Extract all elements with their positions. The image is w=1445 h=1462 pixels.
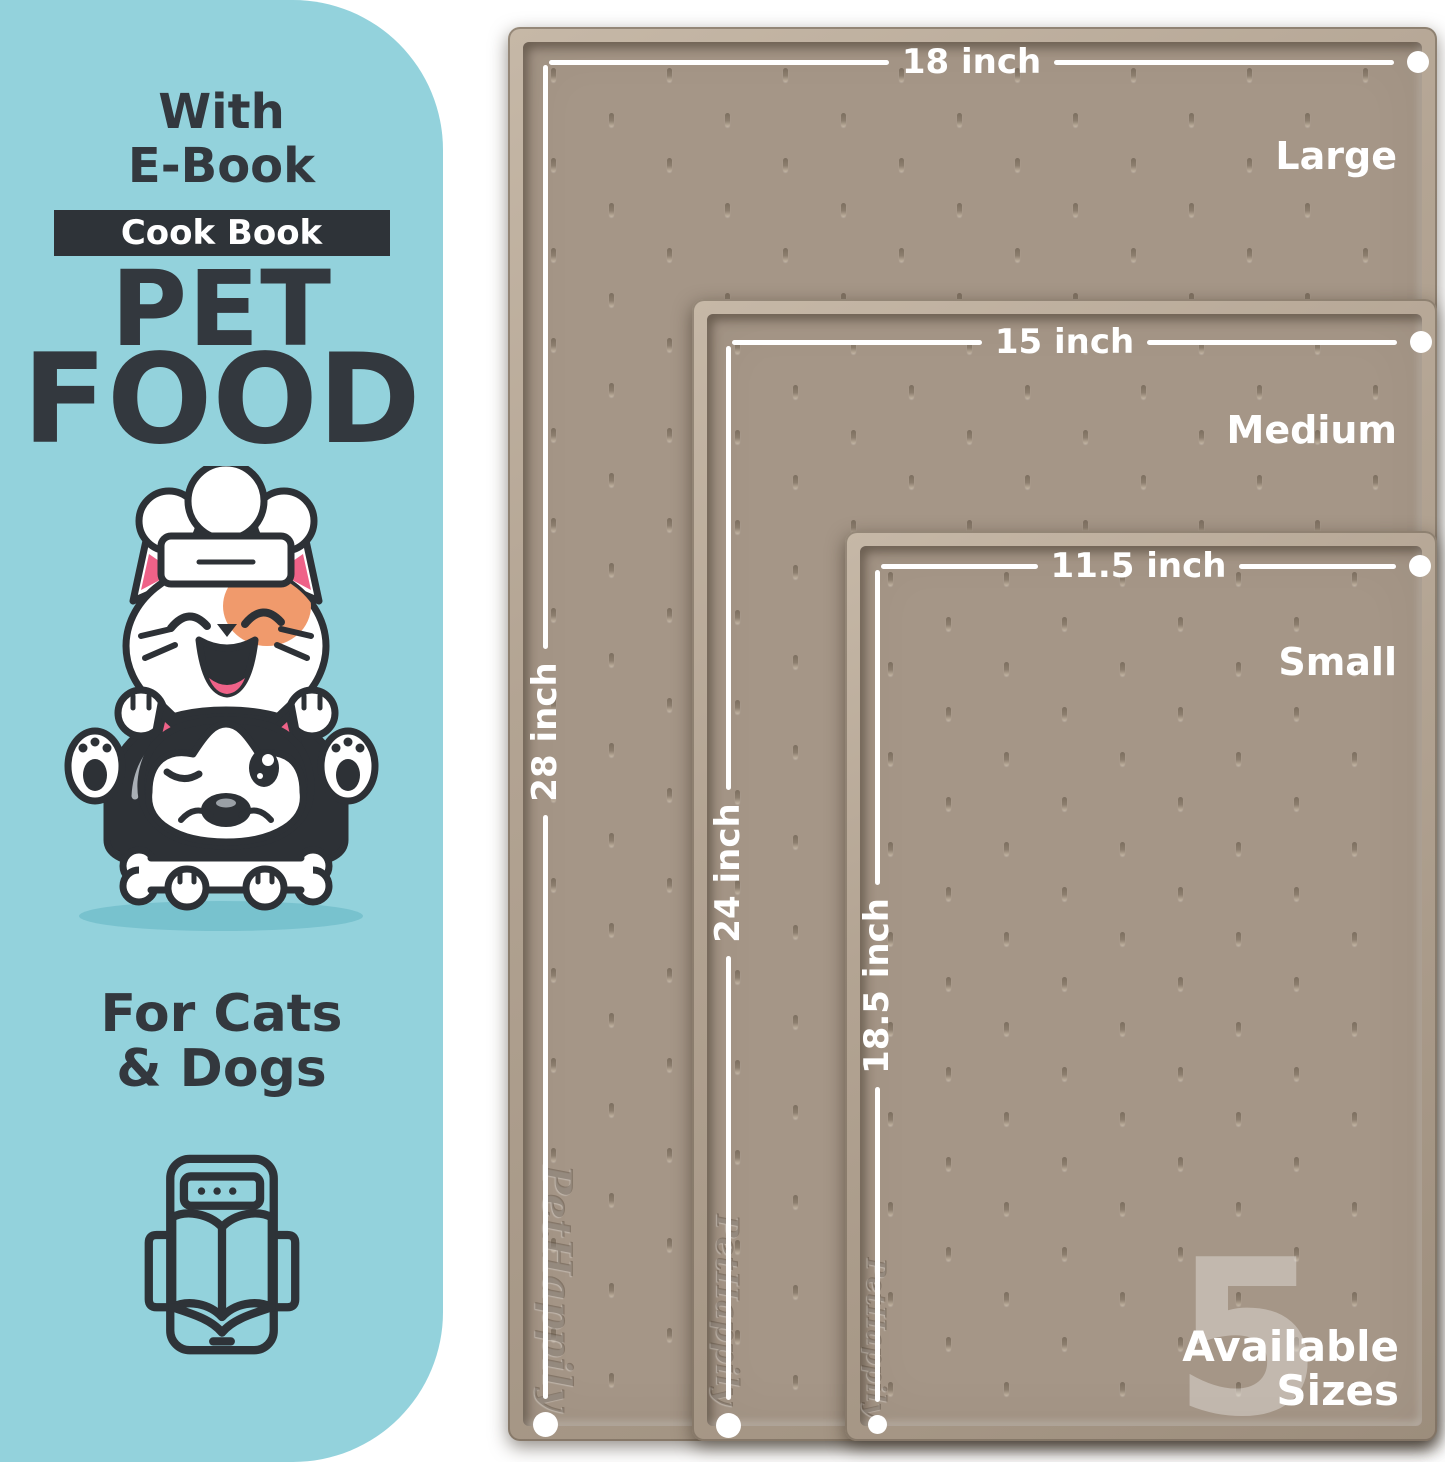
width-label-large: 18 inch	[902, 45, 1041, 79]
left-info-panel: With E-Book Cook Book PET FOOD	[0, 0, 443, 1462]
dimension-line-segment	[549, 60, 889, 65]
mat-texture-dash	[1120, 842, 1125, 856]
mat-texture-dash	[793, 1195, 798, 1209]
mat-texture-dash	[1062, 977, 1067, 991]
mat-texture-dash	[1373, 475, 1378, 489]
mat-texture-dash	[1062, 1157, 1067, 1171]
mat-texture-dash	[1004, 662, 1009, 676]
dimension-line-segment	[543, 815, 548, 1399]
mat-texture-dash	[899, 248, 904, 262]
mat-texture-dash	[667, 518, 672, 532]
mat-texture-dash	[1025, 475, 1030, 489]
product-image: With E-Book Cook Book PET FOOD	[0, 0, 1445, 1462]
mat-texture-dash	[1083, 430, 1088, 444]
chef-hat	[139, 466, 314, 584]
width-dimension-medium: 15 inch	[732, 324, 1432, 360]
mat-texture-dash	[946, 1247, 951, 1261]
mat-texture-dash	[1236, 932, 1241, 946]
mat-texture-dash	[1141, 475, 1146, 489]
mat-texture-dash	[946, 707, 951, 721]
mat-texture-dash	[1015, 158, 1020, 172]
mat-texture-dash	[667, 968, 672, 982]
mat-texture-dash	[1004, 932, 1009, 946]
mat-texture-dash	[1178, 1157, 1183, 1171]
mat-texture-dash	[1352, 842, 1357, 856]
mat-texture-dash	[1352, 1202, 1357, 1216]
dimension-line-segment	[726, 346, 731, 790]
mat-texture-dash	[1199, 430, 1204, 444]
audience-text: For Cats & Dogs	[101, 987, 343, 1097]
height-label-medium: 24 inch	[711, 803, 745, 942]
mat-texture-dash	[1120, 1202, 1125, 1216]
cat-dog-chef-illustration	[49, 466, 394, 941]
mat-texture-dash	[793, 655, 798, 669]
mat-texture-dash	[793, 835, 798, 849]
mat-texture-dash	[1257, 385, 1262, 399]
product-title-line2: FOOD	[22, 351, 420, 450]
mat-texture-dash	[1062, 1067, 1067, 1081]
ebook-heading: With E-Book	[128, 86, 315, 194]
mat-texture-dash	[783, 158, 788, 172]
mat-texture-dash	[793, 1015, 798, 1029]
mat-texture-dash	[946, 617, 951, 631]
sizes-text-line2: Sizes	[1182, 1369, 1399, 1413]
height-dimension-large: 28 inch	[527, 65, 563, 1437]
audience-line2: & Dogs	[101, 1042, 343, 1097]
mat-texture-dash	[1247, 248, 1252, 262]
mat-texture-dash	[1120, 752, 1125, 766]
mat-texture-dash	[1352, 1022, 1357, 1036]
audience-line1: For Cats	[101, 987, 343, 1042]
mat-texture-dash	[793, 385, 798, 399]
dog-nose	[201, 793, 251, 827]
mat-texture-dash	[667, 248, 672, 262]
mat-texture-dash	[667, 1058, 672, 1072]
mat-texture-dash	[957, 113, 962, 127]
dimension-line-segment	[726, 956, 731, 1400]
mat-texture-dash	[1294, 1067, 1299, 1081]
mat-texture-dash	[725, 203, 730, 217]
mat-texture-dash	[667, 158, 672, 172]
mat-texture-dash	[1294, 797, 1299, 811]
mat-texture-dash	[667, 608, 672, 622]
mat-texture-dash	[946, 1337, 951, 1351]
dimension-line-segment	[875, 1087, 880, 1402]
mat-texture-dash	[1178, 707, 1183, 721]
dimension-line-segment	[875, 570, 880, 885]
mat-texture-dash	[667, 1148, 672, 1162]
mat-texture-dash	[1189, 113, 1194, 127]
mat-texture-dash	[1178, 797, 1183, 811]
mat-texture-dash	[609, 1373, 614, 1387]
available-sizes-badge: 5 Available Sizes	[1135, 1245, 1405, 1425]
mat-texture-dash	[841, 113, 846, 127]
mat-texture-dash	[609, 1013, 614, 1027]
mat-texture-dash	[793, 475, 798, 489]
size-label-small: Small	[1278, 640, 1397, 684]
mat-texture-dash	[1236, 662, 1241, 676]
mat-texture-dash	[1131, 248, 1136, 262]
mat-texture-dash	[1062, 887, 1067, 901]
mat-texture-dash	[1120, 1292, 1125, 1306]
sizes-text: Available Sizes	[1182, 1325, 1399, 1412]
ebook-heading-line2: E-Book	[128, 140, 315, 194]
mat-texture-dash	[609, 833, 614, 847]
mat-texture-dash	[609, 563, 614, 577]
mat-texture-dash	[946, 1067, 951, 1081]
mat-texture-dash	[609, 743, 614, 757]
mat-texture-dash	[1305, 113, 1310, 127]
mat-texture-dash	[1294, 617, 1299, 631]
mat-texture-dash	[1294, 707, 1299, 721]
dog-open-eye	[249, 749, 279, 787]
mat-texture-dash	[1236, 1022, 1241, 1036]
dimension-line-segment	[1147, 340, 1397, 345]
mat-texture-dash	[793, 1375, 798, 1389]
mat-texture-dash	[609, 923, 614, 937]
mat-texture-dash	[1062, 1247, 1067, 1261]
mat-texture-dash	[946, 977, 951, 991]
dimension-endpoint-dot	[716, 1413, 741, 1438]
mat-texture-dash	[1004, 1112, 1009, 1126]
mat-texture-dash	[1004, 1022, 1009, 1036]
mat-texture-dash	[1120, 1382, 1125, 1396]
mat-texture-dash	[609, 383, 614, 397]
mat-texture-dash	[1062, 1337, 1067, 1351]
mat-texture-dash	[1141, 385, 1146, 399]
dimension-endpoint-dot	[868, 1415, 887, 1434]
mat-texture-dash	[667, 878, 672, 892]
mat-texture-dash	[1352, 932, 1357, 946]
mat-texture-dash	[1062, 617, 1067, 631]
ebook-tablet-icon	[137, 1153, 307, 1358]
product-title: PET FOOD	[22, 268, 420, 450]
mat-texture-dash	[1004, 1292, 1009, 1306]
mat-texture-dash	[609, 1193, 614, 1207]
mat-texture-dash	[1025, 385, 1030, 399]
mat-texture-dash	[609, 473, 614, 487]
mat-texture-dash	[946, 887, 951, 901]
mat-texture-dash	[1178, 887, 1183, 901]
mat-texture-dash	[793, 565, 798, 579]
ebook-heading-line1: With	[128, 86, 315, 140]
mat-texture-dash	[1373, 385, 1378, 399]
height-label-small: 18.5 inch	[860, 898, 894, 1074]
size-label-large: Large	[1275, 134, 1397, 178]
dimension-line-segment	[732, 340, 982, 345]
dimension-endpoint-dot	[1409, 555, 1431, 577]
mat-texture-dash	[1236, 842, 1241, 856]
mat-texture-dash	[609, 653, 614, 667]
mat-texture-dash	[1073, 203, 1078, 217]
height-dimension-medium: 24 inch	[710, 346, 746, 1438]
mat-texture-dash	[1073, 113, 1078, 127]
mat-texture-dash	[899, 158, 904, 172]
mat-texture-dash	[667, 1238, 672, 1252]
mat-texture-dash	[1004, 752, 1009, 766]
dimension-endpoint-dot	[1410, 331, 1432, 353]
mat-texture-dash	[609, 1283, 614, 1297]
mat-texture-dash	[667, 1328, 672, 1342]
mat-texture-dash	[609, 293, 614, 307]
ground-shadow	[79, 901, 363, 931]
dimension-line-segment	[1054, 60, 1394, 65]
mat-texture-dash	[1352, 752, 1357, 766]
mat-texture-dash	[1178, 977, 1183, 991]
width-dimension-small: 11.5 inch	[881, 548, 1431, 584]
mat-texture-dash	[1189, 203, 1194, 217]
mat-texture-dash	[1236, 752, 1241, 766]
dimension-line-segment	[1239, 564, 1396, 569]
mat-texture-dash	[946, 797, 951, 811]
mat-texture-dash	[793, 1105, 798, 1119]
mat-texture-dash	[1294, 887, 1299, 901]
height-label-large: 28 inch	[528, 662, 562, 801]
mat-texture-dash	[909, 385, 914, 399]
width-label-medium: 15 inch	[995, 325, 1134, 359]
dimension-line-segment	[543, 65, 548, 649]
mat-texture-dash	[667, 338, 672, 352]
width-label-small: 11.5 inch	[1051, 549, 1227, 583]
sizes-text-line1: Available	[1182, 1325, 1399, 1369]
mat-texture-dash	[725, 113, 730, 127]
mat-texture-dash	[967, 430, 972, 444]
mat-texture-dash	[609, 113, 614, 127]
mat-texture-dash	[1004, 1382, 1009, 1396]
mat-texture-dash	[609, 1103, 614, 1117]
mat-texture-dash	[1257, 475, 1262, 489]
mat-texture-dash	[1062, 797, 1067, 811]
mat-texture-dash	[667, 788, 672, 802]
mat-texture-dash	[783, 248, 788, 262]
mat-texture-dash	[1294, 1157, 1299, 1171]
mat-texture-dash	[793, 1285, 798, 1299]
mat-texture-dash	[957, 203, 962, 217]
mat-texture-dash	[1305, 203, 1310, 217]
mat-texture-dash	[1131, 158, 1136, 172]
mat-texture-dash	[667, 428, 672, 442]
tablet-toolbar	[183, 1177, 259, 1206]
mat-texture-dash	[793, 925, 798, 939]
mat-texture-dash	[1120, 1112, 1125, 1126]
dimension-endpoint-dot	[533, 1412, 558, 1437]
mat-texture-dash	[1004, 842, 1009, 856]
mat-texture-dash	[1294, 977, 1299, 991]
mat-texture-dash	[946, 1157, 951, 1171]
mat-texture-dash	[1236, 1112, 1241, 1126]
bone	[123, 850, 329, 902]
mat-texture-dash	[1247, 158, 1252, 172]
mat-texture-dash	[667, 698, 672, 712]
width-dimension-large: 18 inch	[549, 44, 1429, 80]
mat-texture-dash	[1004, 1202, 1009, 1216]
mat-texture-dash	[1178, 1067, 1183, 1081]
mat-texture-dash	[1120, 1022, 1125, 1036]
size-label-medium: Medium	[1227, 408, 1397, 452]
mat-texture-dash	[841, 203, 846, 217]
mat-texture-dash	[1120, 662, 1125, 676]
mat-texture-dash	[909, 475, 914, 489]
mat-texture-dash	[1178, 617, 1183, 631]
mat-texture-dash	[1352, 1112, 1357, 1126]
mat-texture-dash	[1015, 248, 1020, 262]
mat-texture-dash	[851, 430, 856, 444]
mat-texture-dash	[1120, 932, 1125, 946]
mat-texture-dash	[1062, 707, 1067, 721]
mat-texture-dash	[793, 745, 798, 759]
dimension-endpoint-dot	[1407, 51, 1429, 73]
mat-texture-dash	[1363, 248, 1368, 262]
height-dimension-small: 18.5 inch	[859, 570, 895, 1434]
dimension-line-segment	[881, 564, 1038, 569]
mat-texture-dash	[609, 203, 614, 217]
